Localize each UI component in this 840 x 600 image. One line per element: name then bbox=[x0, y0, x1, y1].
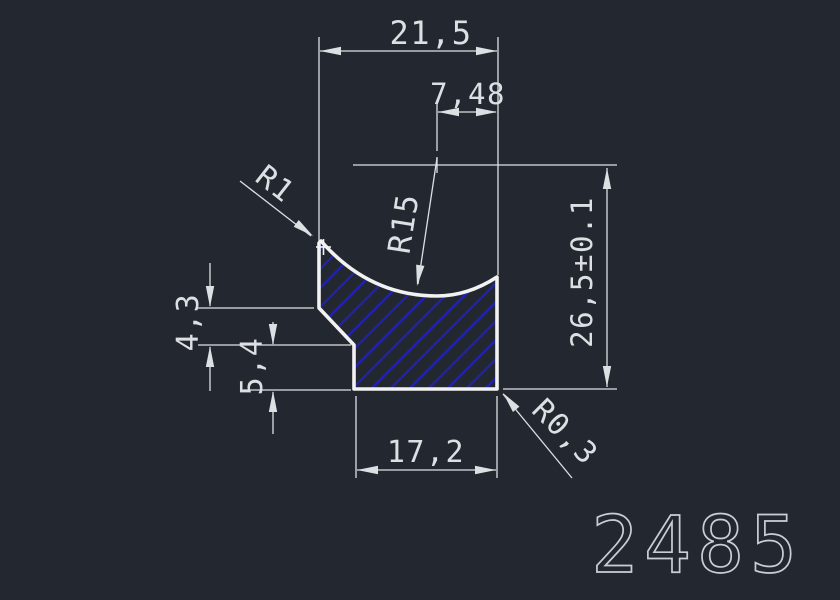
dim-inner-width bbox=[437, 102, 497, 173]
radius-label-r1: R1 bbox=[249, 159, 301, 211]
arrowhead bbox=[294, 220, 316, 239]
dim-label-top-width: 21,5 bbox=[389, 14, 472, 52]
dim-label-bottom-width: 17,2 bbox=[387, 435, 465, 470]
technical-drawing: 21,5 7,48 26,5±0.1 4,3 5,4 17,2 R1 R15 R… bbox=[0, 0, 840, 600]
dim-label-total-height: 26,5±0.1 bbox=[565, 196, 599, 348]
arrowhead bbox=[269, 324, 277, 345]
arrowhead bbox=[476, 47, 497, 55]
dim-label-step-height: 4,3 bbox=[171, 293, 206, 352]
radius-label-r0-3: R0,3 bbox=[525, 392, 605, 472]
arrowhead bbox=[603, 168, 611, 189]
section-profile bbox=[319, 241, 497, 389]
cad-drawing-canvas: 21,5 7,48 26,5±0.1 4,3 5,4 17,2 R1 R15 R… bbox=[0, 0, 840, 600]
arrowhead bbox=[500, 390, 520, 412]
arrowhead bbox=[206, 286, 214, 307]
arrowhead bbox=[320, 47, 341, 55]
part-number-label: 2485 bbox=[591, 501, 803, 591]
arrowhead bbox=[206, 346, 214, 367]
arrowhead bbox=[603, 366, 611, 387]
arrowhead bbox=[269, 391, 277, 412]
arrowhead bbox=[475, 466, 496, 474]
radius-label-r15: R15 bbox=[382, 191, 427, 256]
arrowhead bbox=[357, 466, 378, 474]
dim-label-base-height: 5,4 bbox=[235, 337, 270, 396]
dim-label-inner-width: 7,48 bbox=[430, 77, 506, 111]
